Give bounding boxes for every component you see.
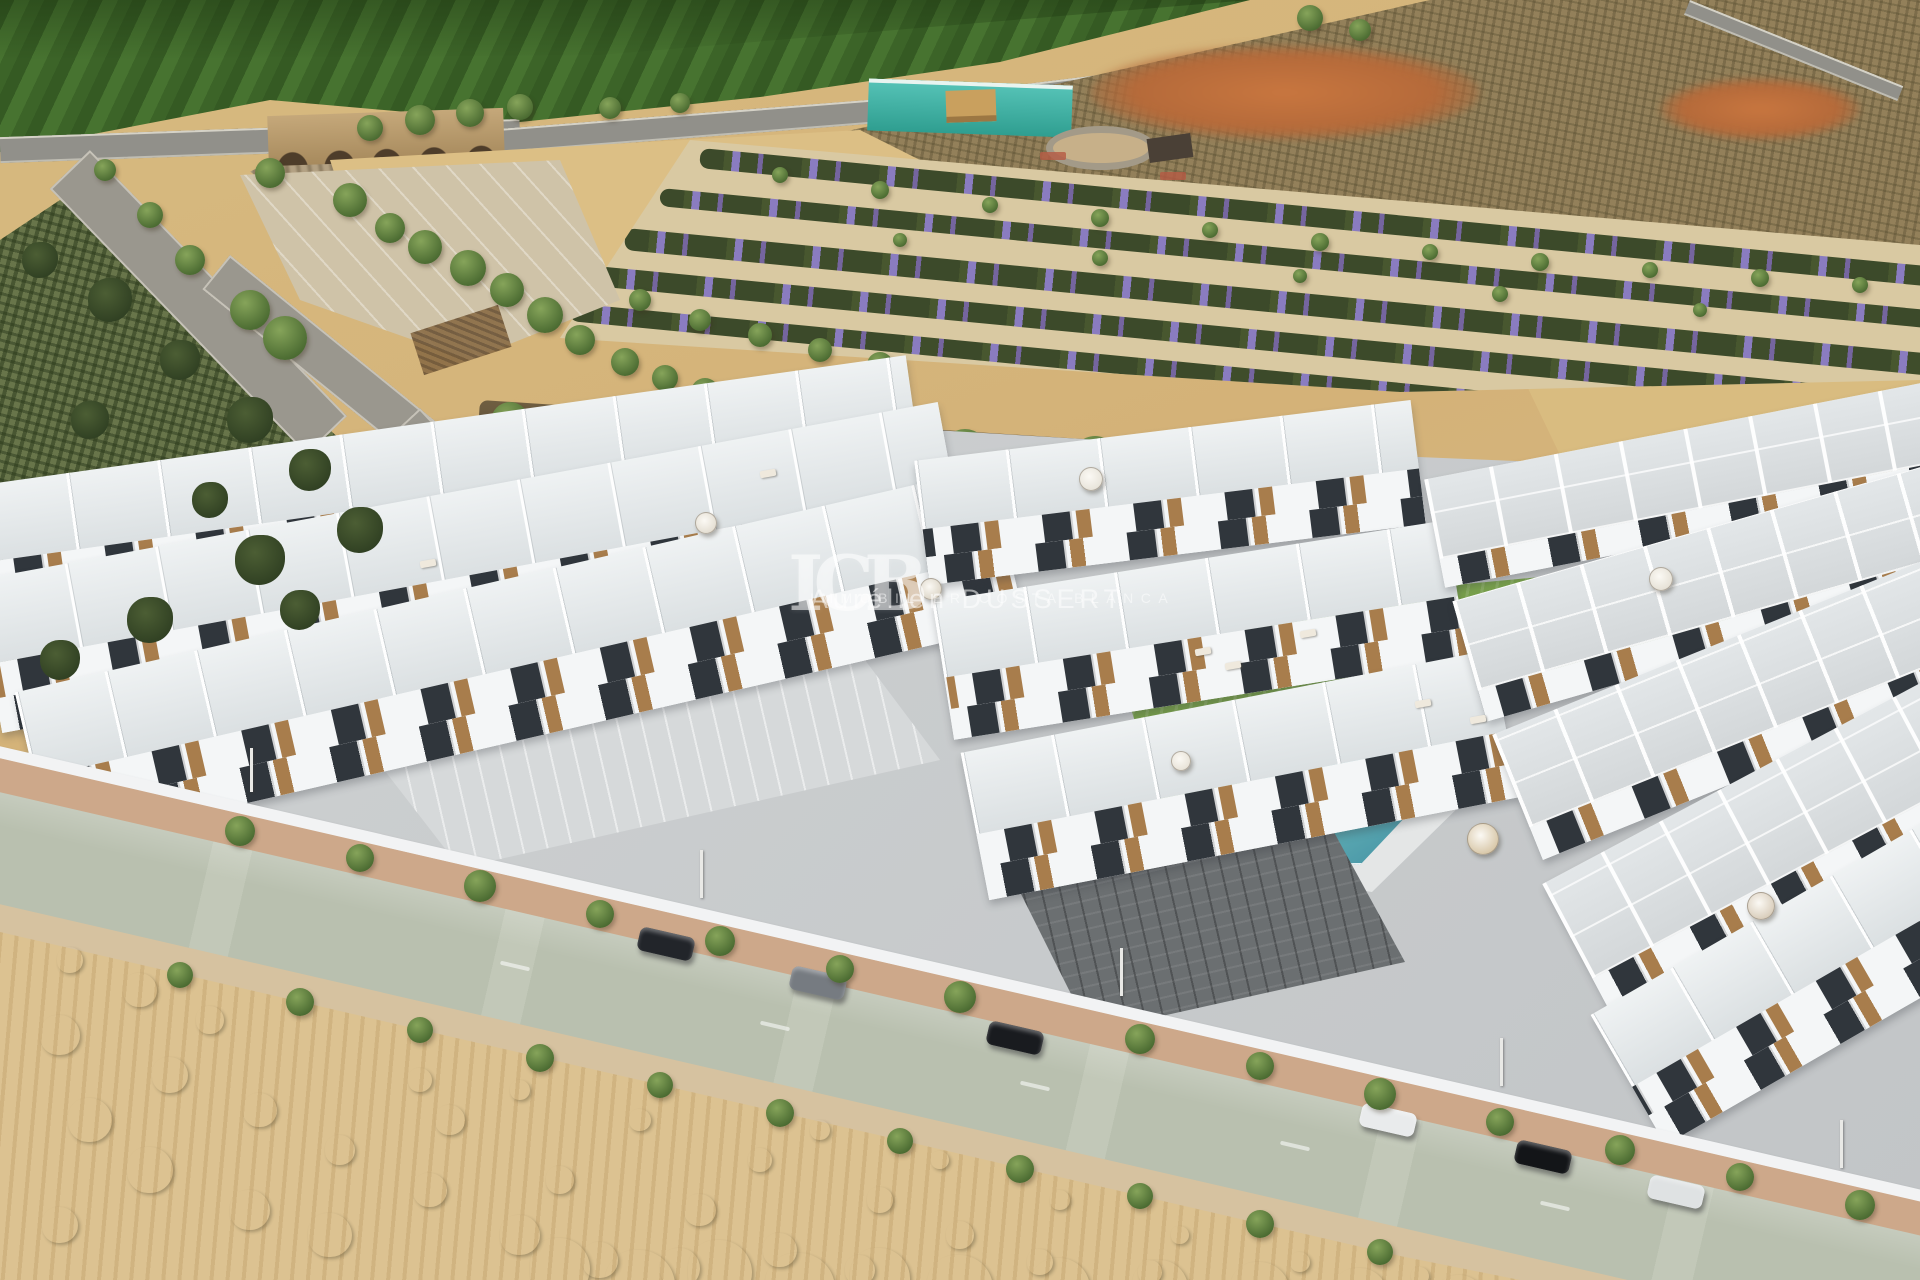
tree — [1092, 250, 1108, 266]
bush — [230, 1190, 270, 1230]
tree — [408, 230, 442, 264]
tree — [586, 900, 614, 928]
bush — [435, 1105, 465, 1135]
tree — [375, 213, 405, 243]
tree — [565, 325, 595, 355]
watermark-tagline: IMMOBILIER COSTA BLANCA — [810, 590, 1175, 606]
orange-dirt-patch — [1660, 78, 1860, 140]
tree — [982, 197, 998, 213]
bush — [810, 1120, 830, 1140]
tree — [333, 183, 367, 217]
tree — [94, 159, 116, 181]
bush — [546, 1166, 574, 1194]
bush — [748, 1148, 772, 1172]
umbrella — [695, 512, 717, 534]
tree — [407, 1017, 433, 1043]
bush — [42, 1207, 78, 1243]
tree — [507, 94, 533, 120]
tree — [611, 348, 639, 376]
bush — [629, 1109, 651, 1131]
lamp — [1120, 948, 1123, 996]
tree — [346, 844, 374, 872]
lamp — [250, 748, 253, 792]
bush — [510, 1080, 530, 1100]
tree — [1293, 269, 1307, 283]
bush — [325, 1135, 355, 1165]
bush — [413, 1173, 447, 1207]
bush — [946, 1221, 974, 1249]
tree — [705, 926, 735, 956]
tree — [1642, 262, 1658, 278]
bush — [57, 947, 83, 973]
tree — [1852, 277, 1868, 293]
orange-dirt-patch — [1090, 45, 1480, 140]
small-hut — [945, 89, 996, 123]
bush — [40, 1015, 80, 1055]
bush — [243, 1093, 277, 1127]
tree — [766, 1099, 794, 1127]
tree — [1422, 244, 1438, 260]
tree — [629, 289, 651, 311]
tree — [1297, 5, 1323, 31]
mark — [1040, 152, 1066, 160]
bush — [867, 1187, 893, 1213]
tree — [1605, 1135, 1635, 1165]
bush — [1290, 1252, 1310, 1272]
tree — [526, 1044, 554, 1072]
tree — [286, 988, 314, 1016]
tree — [670, 93, 690, 113]
tree — [1486, 1108, 1514, 1136]
tree — [1751, 269, 1769, 287]
tree — [405, 105, 435, 135]
tree — [689, 309, 711, 331]
tree — [1531, 253, 1549, 271]
umbrella — [1649, 567, 1673, 591]
tree — [255, 158, 285, 188]
tree — [1492, 286, 1508, 302]
umbrella — [1171, 751, 1191, 771]
tree — [1311, 233, 1329, 251]
tree — [175, 245, 205, 275]
tree — [225, 816, 255, 846]
aerial-property-render: ICB Aurélien DUSSERT IMMOBILIER COSTA BL… — [0, 0, 1920, 1280]
tree — [1246, 1052, 1274, 1080]
bush — [196, 1006, 224, 1034]
tree — [1246, 1210, 1274, 1238]
lamp — [1500, 1038, 1503, 1086]
bush — [308, 1213, 352, 1257]
umbrella — [1747, 892, 1775, 920]
tree — [263, 316, 307, 360]
tree — [137, 202, 163, 228]
tree — [230, 290, 270, 330]
bush — [68, 1098, 112, 1142]
tree — [887, 1128, 913, 1154]
tree — [647, 1072, 673, 1098]
tree — [893, 233, 907, 247]
tree — [456, 99, 484, 127]
bush — [123, 973, 157, 1007]
bush — [408, 1068, 432, 1092]
bush — [1050, 1190, 1070, 1210]
tree — [1202, 222, 1218, 238]
umbrella — [1079, 467, 1103, 491]
tree — [599, 97, 621, 119]
tree — [1349, 19, 1371, 41]
tree — [490, 273, 524, 307]
lamp — [700, 850, 703, 898]
tree — [1125, 1024, 1155, 1054]
bush — [1171, 1226, 1189, 1244]
tree — [772, 167, 788, 183]
tree — [1006, 1155, 1034, 1183]
tree — [1693, 303, 1707, 317]
tree — [826, 955, 854, 983]
tree — [1364, 1078, 1396, 1110]
tree — [450, 250, 486, 286]
bush — [127, 1147, 173, 1193]
bush — [152, 1057, 188, 1093]
tree — [167, 962, 193, 988]
tree — [871, 181, 889, 199]
tree — [1127, 1183, 1153, 1209]
lamp — [1840, 1120, 1843, 1168]
tree — [1091, 209, 1109, 227]
tree — [464, 870, 496, 902]
bush — [1411, 1267, 1429, 1280]
tree — [357, 115, 383, 141]
tree — [1845, 1190, 1875, 1220]
roundabout — [1046, 126, 1156, 170]
tree — [1726, 1163, 1754, 1191]
tree — [748, 323, 772, 347]
bush — [684, 1194, 716, 1226]
umbrella — [1467, 823, 1499, 855]
tree — [527, 297, 563, 333]
tree — [808, 338, 832, 362]
mark — [1160, 172, 1186, 180]
bush — [931, 1151, 949, 1169]
tree — [944, 981, 976, 1013]
tree — [1367, 1239, 1393, 1265]
